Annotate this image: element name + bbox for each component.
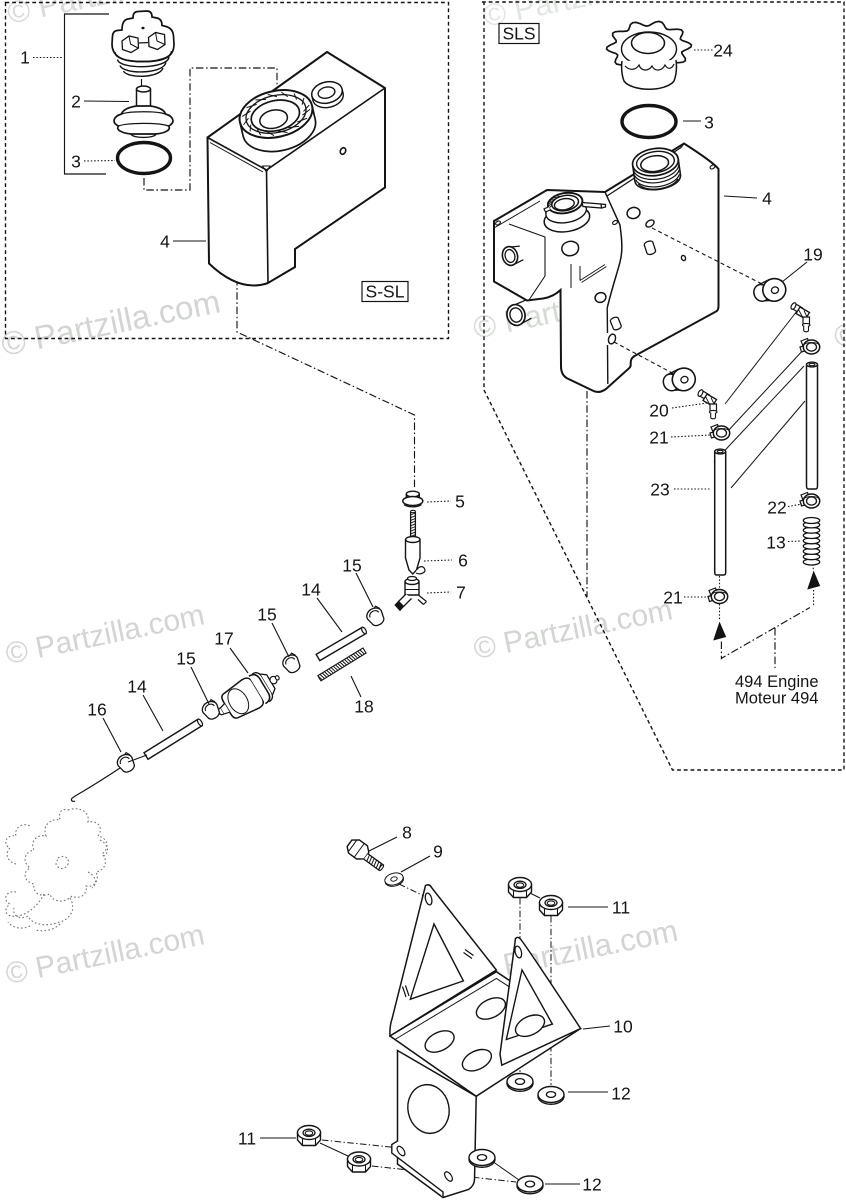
svg-text:12: 12 xyxy=(582,1174,601,1194)
svg-text:15: 15 xyxy=(257,604,276,624)
svg-text:21: 21 xyxy=(649,427,668,447)
svg-text:4: 4 xyxy=(160,231,170,251)
svg-text:15: 15 xyxy=(342,555,361,575)
svg-text:2: 2 xyxy=(71,91,81,111)
svg-text:7: 7 xyxy=(456,582,466,602)
svg-text:13: 13 xyxy=(766,532,785,552)
svg-text:15: 15 xyxy=(176,648,195,668)
svg-text:16: 16 xyxy=(87,699,106,719)
svg-text:3: 3 xyxy=(704,112,714,132)
svg-text:19: 19 xyxy=(803,244,822,264)
svg-text:22: 22 xyxy=(767,497,786,517)
svg-text:S-SL: S-SL xyxy=(366,282,405,302)
svg-text:23: 23 xyxy=(650,479,669,499)
svg-text:10: 10 xyxy=(613,1016,633,1036)
svg-text:18: 18 xyxy=(354,696,373,716)
svg-text:11: 11 xyxy=(238,1128,256,1148)
svg-text:21: 21 xyxy=(663,587,682,607)
svg-text:24: 24 xyxy=(713,40,733,60)
svg-text:14: 14 xyxy=(301,579,321,599)
svg-text:6: 6 xyxy=(458,550,468,570)
svg-text:5: 5 xyxy=(455,491,465,511)
svg-text:4: 4 xyxy=(762,188,772,208)
svg-text:SLS: SLS xyxy=(502,24,535,44)
svg-text:8: 8 xyxy=(402,822,412,842)
svg-text:Moteur 494: Moteur 494 xyxy=(735,690,818,708)
svg-text:9: 9 xyxy=(433,841,443,861)
svg-text:17: 17 xyxy=(214,628,233,648)
svg-text:14: 14 xyxy=(127,676,147,696)
svg-text:3: 3 xyxy=(71,151,81,171)
svg-text:20: 20 xyxy=(649,400,669,420)
svg-text:494 Engine: 494 Engine xyxy=(735,673,819,691)
svg-text:1: 1 xyxy=(20,47,30,67)
svg-text:11: 11 xyxy=(612,897,630,917)
svg-text:12: 12 xyxy=(611,1083,630,1103)
